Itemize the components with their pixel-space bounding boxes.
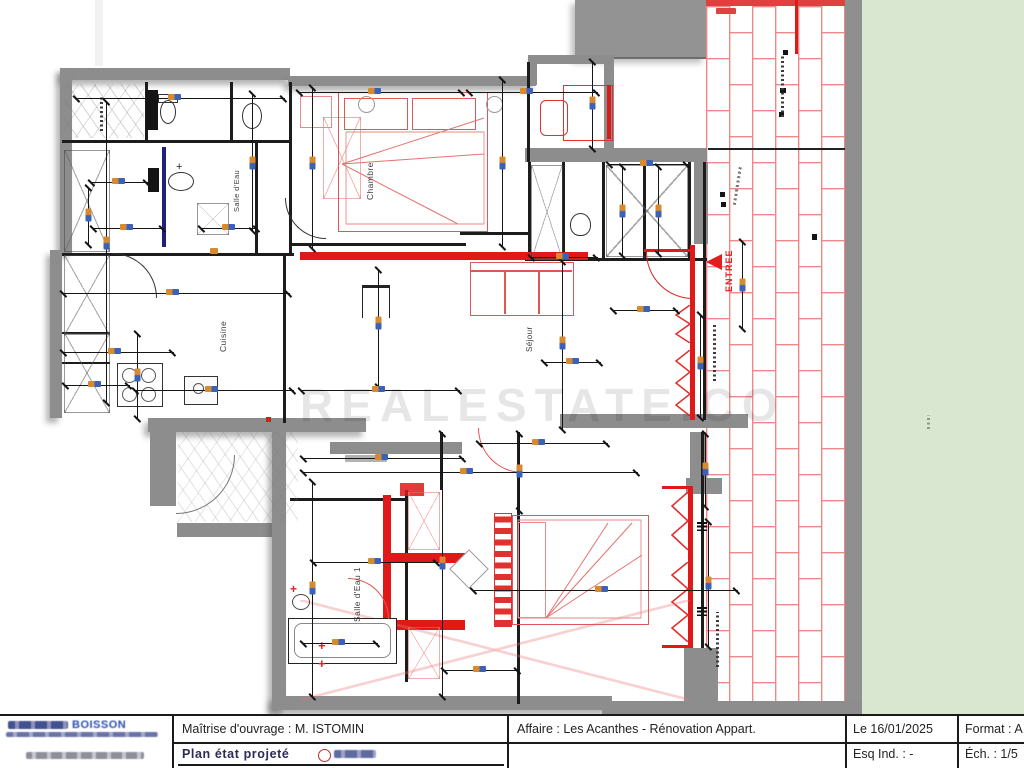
- partition-line: [230, 82, 233, 140]
- duct-shaft: [148, 168, 159, 192]
- dimension-value: [698, 357, 704, 370]
- ceiling-light: [358, 96, 375, 113]
- dimension-value: [120, 224, 133, 230]
- title-block-row-divider: [172, 742, 1024, 744]
- dimension-value: [473, 666, 486, 672]
- closet-hatch: [531, 165, 563, 259]
- partition-line: [289, 243, 466, 246]
- dimension-line: [106, 102, 107, 402]
- side-table: [362, 285, 390, 318]
- wall-segment: [525, 148, 707, 162]
- dimension-value: [656, 205, 662, 218]
- terrace-annotation-smudge: [716, 8, 736, 14]
- dimension-value: [590, 97, 596, 110]
- closet-hatch: [606, 165, 688, 257]
- tap-mark-red: +: [318, 638, 326, 653]
- plan-title-red-circle: [318, 749, 331, 762]
- room-label-cuisine: Cuisine: [218, 321, 228, 352]
- wall-segment: [177, 523, 272, 537]
- dimension-value: [706, 577, 712, 590]
- room-label-salle-eau-1: Salle d'Eau 1: [352, 567, 362, 622]
- floor-plan-scan: + + + +: [0, 0, 1024, 768]
- desk-chair: [540, 100, 568, 136]
- dimension-value: [517, 465, 523, 478]
- dimension-value: [222, 224, 235, 230]
- door-swing-arc: [112, 253, 157, 298]
- lawn-small-mark: [927, 415, 930, 429]
- terrace-fixture: [783, 50, 788, 55]
- esq-index-text: Esq Ind. : -: [853, 747, 913, 761]
- washbasin: [570, 213, 591, 236]
- blanket-fold-lines: [512, 515, 647, 623]
- tap-mark-red: +: [318, 656, 326, 671]
- terrace-tiled-floor: [706, 6, 845, 702]
- dimension-value: [88, 381, 101, 387]
- wall-segment: [50, 250, 62, 418]
- wall-segment: [694, 162, 708, 244]
- sofa-back-line: [470, 270, 572, 272]
- dimension-value: [375, 454, 388, 460]
- dimension-value: [532, 439, 545, 445]
- room-label-chambre: Chambre: [365, 162, 375, 200]
- company-address-scribble: [26, 752, 144, 759]
- nightstand: [300, 96, 332, 128]
- entry-arrow: [706, 254, 722, 270]
- window-sill-marks: [697, 522, 707, 531]
- blanket-fold-lines: [338, 92, 486, 230]
- dimension-value: [556, 253, 569, 259]
- entry-label: ENTREE: [724, 249, 734, 292]
- dimension-value: [376, 317, 382, 330]
- sink-drain: [193, 383, 204, 394]
- wall-segment: [602, 701, 862, 714]
- room-note: [100, 95, 103, 131]
- scale-text: Éch. : 1/5: [965, 747, 1018, 761]
- dimension-value: [595, 586, 608, 592]
- terrace-boundary-wall: [845, 0, 862, 715]
- terrace-tile-pattern: [706, 6, 845, 702]
- dimension-value: [566, 358, 579, 364]
- window-sill-marks: [697, 607, 707, 616]
- project-text: Affaire : Les Acanthes - Rénovation Appa…: [517, 722, 756, 736]
- terrace-vertical-note: [781, 55, 784, 117]
- burner: [141, 368, 156, 383]
- partition-line: [527, 62, 530, 162]
- shower-room-hatch: [64, 84, 144, 138]
- window-frame-red: [662, 486, 690, 489]
- dimension-value: [310, 582, 316, 595]
- terrace-step-line: [708, 148, 845, 150]
- window-note: [713, 323, 716, 381]
- terrace-fixture: [720, 192, 725, 197]
- lawn-area: [862, 0, 1024, 715]
- dimension-value: [86, 209, 92, 222]
- wall-segment: [62, 68, 290, 80]
- dimension-value: [520, 88, 533, 94]
- title-block: BOISSON Maîtrise d'ouvrage : M. ISTOMIN …: [0, 714, 1024, 768]
- partition-line: [62, 140, 292, 143]
- dimension-value: [560, 337, 566, 350]
- dimension-value: [368, 558, 381, 564]
- partition-line: [460, 232, 528, 235]
- room-label-salle-eau: Salle d'Eau: [232, 170, 241, 212]
- dimension-value: [205, 386, 218, 392]
- dimension-value: [104, 237, 110, 250]
- terrace-fixture: [721, 202, 726, 207]
- owner-text: Maîtrise d'ouvrage : M. ISTOMIN: [182, 722, 364, 736]
- terrace-fixture: [812, 234, 817, 240]
- bed-headboard-striped: [494, 513, 512, 627]
- closet-hatch: [408, 492, 440, 550]
- dimension-value: [640, 160, 653, 166]
- dimension-value: [460, 468, 473, 474]
- watermark-text: REALESTATE.CO: [300, 378, 786, 432]
- dimension-value: [637, 306, 650, 312]
- dimension-value: [250, 157, 256, 170]
- partition-line: [602, 162, 605, 260]
- company-tagline-scribble: [6, 732, 158, 737]
- dimension-value: [168, 94, 181, 100]
- dimension-value: [135, 369, 141, 382]
- partition-line: [283, 253, 286, 423]
- plan-title-underline: [178, 764, 504, 766]
- entry-door-swing-arc: [646, 252, 693, 299]
- window-glazing-zigzag: [668, 492, 690, 550]
- dimension-value: [440, 557, 446, 570]
- company-logo-text: BOISSON: [72, 719, 126, 731]
- terrace-red-mark: [795, 0, 798, 54]
- format-text: Format : A: [965, 722, 1023, 736]
- plan-title-text: Plan état projeté: [182, 747, 289, 761]
- dimension-value: [368, 88, 381, 94]
- washbasin: [292, 594, 310, 610]
- dimension-value: [740, 279, 746, 292]
- dimension-value: [108, 348, 121, 354]
- company-logo-scribble: [8, 721, 68, 729]
- sofa-cushion-divider: [538, 270, 540, 314]
- dimension-value: [332, 639, 345, 645]
- desk: [563, 85, 613, 141]
- washbasin: [168, 172, 194, 191]
- dimension-value: [210, 248, 218, 254]
- red-dot-mark: [266, 417, 271, 422]
- dimension-value: [310, 157, 316, 170]
- duct-shaft: [146, 90, 158, 130]
- dimension-value: [112, 178, 125, 184]
- plan-title-extra-scribble: [334, 750, 376, 758]
- dimension-value: [166, 289, 179, 295]
- date-text: Le 16/01/2025: [853, 722, 933, 736]
- wall-segment: [536, 55, 614, 64]
- partition-line: [289, 82, 292, 256]
- scan-streak: [95, 0, 103, 66]
- closet-hatch: [64, 255, 110, 335]
- dimension-value: [500, 157, 506, 170]
- faucet-mark: +: [176, 163, 184, 171]
- toilet: [160, 100, 176, 124]
- desk-edge: [607, 85, 611, 139]
- room-label-sejour: Séjour: [525, 326, 534, 352]
- ceiling-light: [486, 96, 503, 113]
- dimension-line: [468, 92, 598, 93]
- sofa-cushion-divider: [504, 270, 506, 314]
- dimension-value: [703, 463, 709, 476]
- dimension-value: [620, 205, 626, 218]
- wall-segment: [150, 418, 176, 506]
- neighbor-building-mass: [575, 0, 706, 59]
- window-note: [716, 612, 719, 667]
